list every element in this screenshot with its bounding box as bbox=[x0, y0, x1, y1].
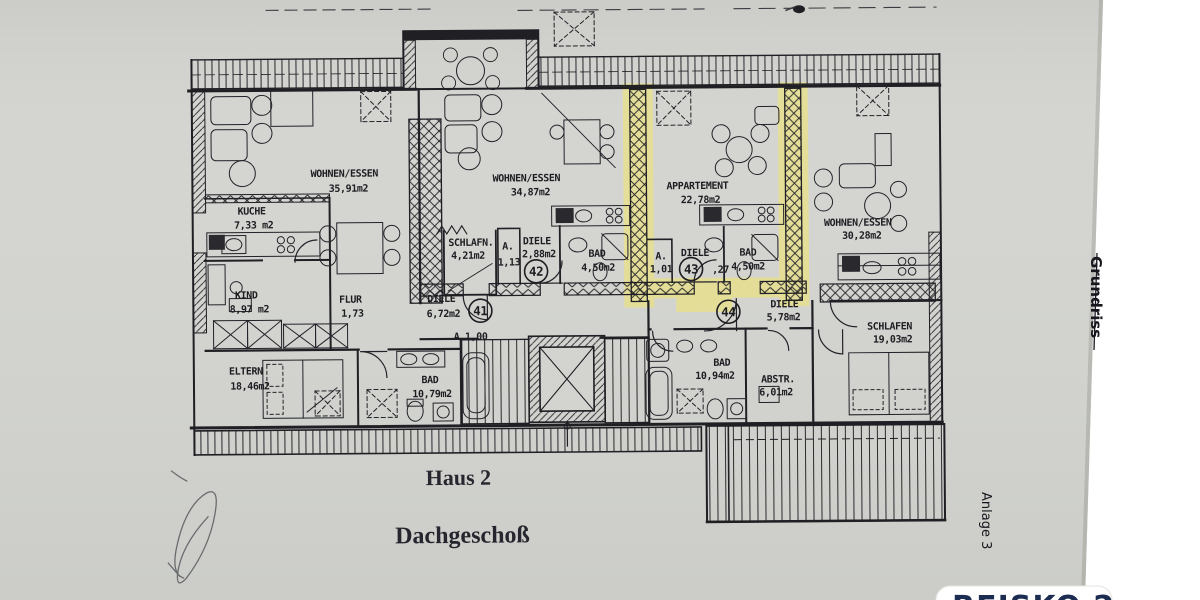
stairs-left bbox=[462, 339, 530, 424]
balcony-railing-top bbox=[191, 54, 939, 89]
stairs-right bbox=[605, 338, 650, 422]
floor-title: Dachgeschoß bbox=[395, 522, 530, 549]
watermark-logo: REISKO 2 bbox=[936, 586, 1115, 600]
room-area-44: 5,78m2 bbox=[767, 312, 801, 323]
room-area-42: 4,21m2 bbox=[451, 251, 485, 262]
room-label-kuche-41: KUCHE bbox=[238, 206, 267, 217]
scanned-floor-plan: WOHNEN/ESSEN35,91m2KUCHE7,33 m2KIND8,97 … bbox=[0, 0, 1200, 600]
room-area-44: 19,03m2 bbox=[873, 334, 913, 345]
room-label-a--43: A. bbox=[655, 251, 666, 262]
room-label-kind-41: KIND bbox=[235, 290, 258, 301]
room-area-43: 22,78m2 bbox=[681, 195, 721, 206]
unit-number-44: 44 bbox=[721, 304, 735, 319]
room-label-appartement-43: APPARTEMENT bbox=[666, 181, 728, 192]
unit-number-42: 42 bbox=[529, 264, 543, 279]
room-label-wohnen-essen-41: WOHNEN/ESSEN bbox=[311, 169, 379, 181]
unit-number-43: 43 bbox=[684, 261, 698, 276]
room-label-bad-42: BAD bbox=[588, 249, 605, 260]
room-area-43: 1,01 bbox=[650, 264, 673, 275]
room-area-42: 4,50m2 bbox=[581, 263, 615, 274]
room-area-41: 8,97 m2 bbox=[230, 304, 270, 315]
floor-plan-svg: WOHNEN/ESSEN35,91m2KUCHE7,33 m2KIND8,97 … bbox=[0, 0, 1200, 600]
room-label-eltern-41: ELTERN bbox=[229, 366, 263, 377]
elevator bbox=[529, 336, 606, 423]
room-label-diele-44: DIELE bbox=[770, 299, 799, 310]
room-label-bad-43: BAD bbox=[739, 248, 756, 259]
balcony-railing-bottom bbox=[194, 427, 701, 455]
room-label-wohnen-essen-42: WOHNEN/ESSEN bbox=[493, 173, 561, 185]
room-label-bad-44: BAD bbox=[713, 358, 730, 369]
room-area-41: 6,72m2 bbox=[427, 309, 461, 320]
room-label-diele-42: DIELE bbox=[523, 236, 552, 247]
room-label-bad-41: BAD bbox=[421, 375, 438, 386]
svg-text:REISKO 2: REISKO 2 bbox=[952, 590, 1115, 600]
anlage-label: Anlage 3 bbox=[978, 492, 993, 549]
room-label-schlafen-44: SCHLAFEN bbox=[867, 321, 912, 332]
room-area-41: 10,79m2 bbox=[412, 389, 452, 400]
room-area-43: 4,50m2 bbox=[731, 261, 765, 272]
room-label-a--42: A. bbox=[502, 241, 513, 252]
room-area-41: 18,46m2 bbox=[230, 381, 270, 392]
room-label-diele-41: DIELE bbox=[427, 294, 456, 305]
room-label-schlafn--42: SCHLAFN. bbox=[448, 238, 493, 249]
room-area-44: 10,94m2 bbox=[695, 371, 735, 382]
room-label-a-1-00-41: A.1,00 bbox=[454, 332, 488, 343]
roof-terrace bbox=[706, 424, 945, 522]
room-label-wohnen-essen-44: WOHNEN/ESSEN bbox=[824, 217, 892, 229]
unit-number-41: 41 bbox=[473, 303, 487, 318]
room-area-44: 6,01m2 bbox=[759, 387, 793, 398]
room-area-43: ,27 bbox=[712, 265, 729, 276]
room-area-41: 35,91m2 bbox=[329, 184, 369, 195]
room-area-42: 2,88m2 bbox=[522, 249, 556, 260]
room-area-44: 30,28m2 bbox=[842, 231, 882, 242]
building-title: Haus 2 bbox=[426, 465, 492, 491]
room-label-abstr--44: ABSTR. bbox=[761, 374, 795, 385]
room-area-41: 7,33 m2 bbox=[234, 220, 274, 231]
room-area-42: 1,13 bbox=[498, 257, 521, 268]
room-label-flur-41: FLUR bbox=[339, 295, 363, 306]
room-area-42: 34,87m2 bbox=[511, 187, 551, 198]
room-area-41: 1,73 bbox=[341, 309, 364, 320]
